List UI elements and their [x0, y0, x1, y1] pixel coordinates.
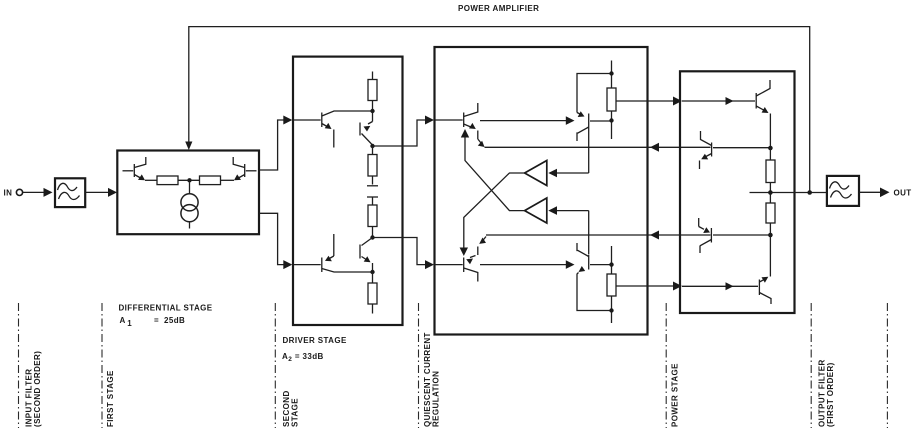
svg-text:=: = — [154, 316, 159, 325]
svg-text:(SECOND ORDER): (SECOND ORDER) — [33, 351, 42, 427]
svg-text:FIRST STAGE: FIRST STAGE — [106, 370, 115, 427]
svg-text:STAGE: STAGE — [291, 398, 300, 427]
svg-text:POWER AMPLIFIER: POWER AMPLIFIER — [458, 4, 539, 13]
svg-text:25dB: 25dB — [164, 316, 185, 325]
svg-text:1: 1 — [127, 319, 132, 328]
svg-text:OUT: OUT — [894, 189, 912, 198]
svg-text:DIFFERENTIAL STAGE: DIFFERENTIAL STAGE — [119, 304, 213, 313]
svg-text:DRIVER STAGE: DRIVER STAGE — [283, 336, 347, 345]
svg-text:IN: IN — [4, 189, 13, 198]
svg-text:POWER STAGE: POWER STAGE — [671, 363, 680, 427]
svg-text:REGULATION: REGULATION — [432, 371, 441, 427]
svg-text:(FIRST ORDER): (FIRST ORDER) — [826, 362, 835, 427]
svg-text:A: A — [120, 316, 126, 325]
